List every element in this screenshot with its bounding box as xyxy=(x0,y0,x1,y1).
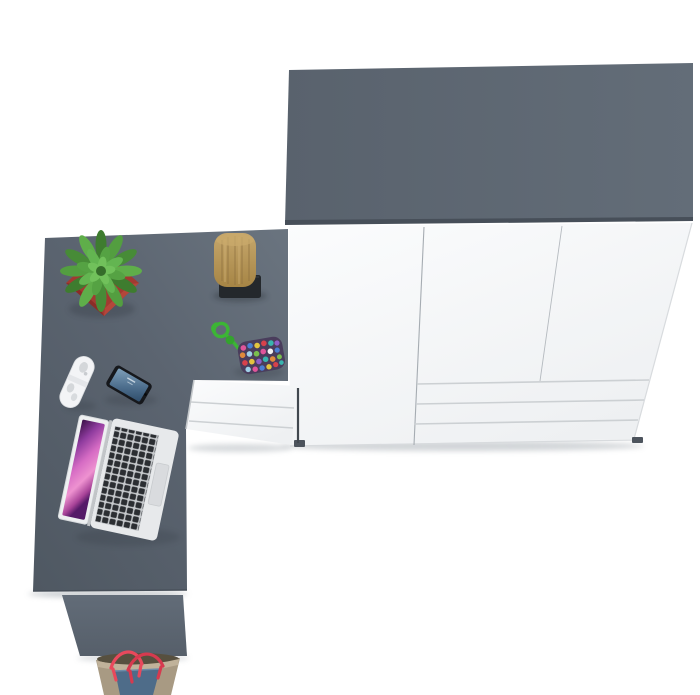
pedestal-front xyxy=(186,380,296,445)
drawer-pedestal xyxy=(186,380,298,452)
wardrobe-foot-right xyxy=(632,437,643,443)
wardrobe-foot-left xyxy=(294,440,305,447)
wardrobe-front xyxy=(289,223,692,446)
bag-denim-panel xyxy=(115,669,160,695)
pedestal-floor-shadow xyxy=(188,444,292,452)
wardrobe-top-panel xyxy=(285,63,693,224)
wardrobe xyxy=(280,63,693,451)
stump-top-highlight xyxy=(216,234,254,246)
plant-center xyxy=(96,266,106,276)
desk-front-edge xyxy=(33,590,187,591)
product-render-scene xyxy=(0,0,700,695)
toy-cord-knot xyxy=(226,336,235,345)
tote-bag xyxy=(96,652,180,695)
desk-side-panel xyxy=(62,595,187,656)
render-canvas xyxy=(0,0,700,695)
wooden-stump-group xyxy=(214,233,261,298)
